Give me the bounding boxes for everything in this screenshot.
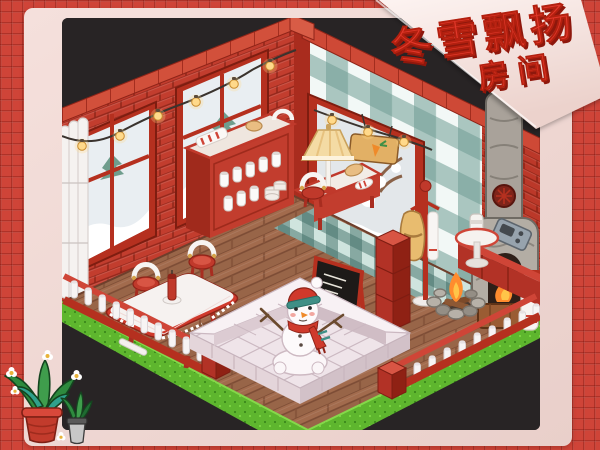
room-scene bbox=[62, 18, 540, 430]
winter-room-poster: 冬雪飘扬 冬雪飘扬 房间 房间 bbox=[0, 0, 600, 450]
small-potted-plant bbox=[61, 392, 92, 444]
red-block-stack bbox=[376, 230, 410, 330]
corner-plants bbox=[1, 348, 101, 450]
